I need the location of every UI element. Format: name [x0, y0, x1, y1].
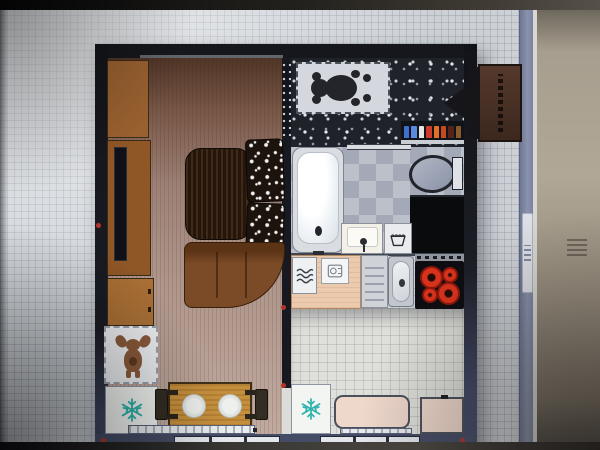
monitor-bezel-top — [0, 0, 600, 10]
bottle — [426, 126, 431, 138]
bottle — [434, 126, 439, 138]
bathtub-drain-icon — [315, 226, 322, 236]
basket-icon — [387, 228, 409, 250]
floor-plan — [95, 44, 477, 450]
kitchen-bench[interactable] — [334, 395, 410, 429]
entrance-arrow-shaft — [469, 127, 480, 139]
wardrobe[interactable] — [107, 60, 149, 138]
cooktop-knob-strip — [415, 254, 464, 261]
washbasin-faucet-stem — [363, 245, 365, 252]
heated-towel-rail[interactable] — [292, 257, 317, 294]
radiator-living[interactable] — [128, 425, 255, 434]
burner — [442, 267, 458, 283]
entrance-sign-board — [478, 64, 522, 142]
bottle — [404, 126, 409, 138]
patterned-armchair-1[interactable] — [245, 138, 285, 202]
drainboard[interactable] — [361, 255, 388, 308]
divider-shelf-decor — [282, 62, 291, 136]
dining-table[interactable] — [168, 382, 252, 428]
door-opening-floor — [282, 388, 291, 434]
scrollbar-thumb[interactable] — [522, 213, 533, 293]
bottle — [411, 126, 416, 138]
dining-chair-left[interactable] — [155, 389, 168, 420]
radiator-kitchen[interactable] — [340, 428, 412, 434]
plate — [182, 394, 206, 418]
dining-chair-right[interactable] — [255, 389, 268, 420]
refrigerator-kitchen[interactable] — [291, 384, 331, 434]
red-corner-marker — [96, 223, 101, 228]
entrance-arrow-shaft — [469, 67, 480, 79]
toilet-tank — [452, 157, 463, 190]
waves-icon — [295, 265, 315, 287]
kitchen-sink[interactable] — [388, 256, 414, 307]
tv[interactable] — [114, 147, 127, 261]
wall-top-highlight — [140, 55, 283, 58]
snowflake-icon — [299, 397, 323, 421]
deer-icon — [119, 336, 147, 378]
burner — [422, 287, 438, 303]
photo-left-shadow — [0, 8, 8, 444]
red-corner-marker — [281, 383, 286, 388]
bathtub[interactable] — [292, 147, 344, 253]
bear-icon — [311, 71, 375, 105]
bottle — [419, 126, 424, 138]
monitor-bezel-bottom — [0, 442, 600, 450]
entrance-sign[interactable] — [444, 62, 524, 146]
washing-machine[interactable] — [410, 195, 464, 253]
burner — [437, 282, 460, 305]
side-table[interactable] — [420, 397, 464, 434]
laundry-basket[interactable] — [384, 223, 412, 254]
scrollbar-grip-icon — [524, 245, 531, 261]
dresser[interactable] — [107, 278, 154, 326]
entrance-arrow-icon — [444, 77, 479, 129]
cooktop[interactable] — [415, 261, 464, 309]
photo-of-screen — [0, 0, 600, 450]
monitor-side-panel — [537, 8, 600, 444]
deer-rug[interactable] — [104, 326, 158, 384]
bathroom-door-threshold — [347, 144, 411, 150]
coffee-machine[interactable] — [321, 258, 349, 284]
vent-lines — [567, 238, 587, 256]
washbasin[interactable] — [341, 223, 383, 254]
plate — [218, 394, 242, 418]
design-app-canvas — [0, 8, 537, 444]
washbasin-faucet-icon — [360, 238, 367, 245]
coffee-machine-icon — [325, 262, 345, 280]
side-table-knob — [441, 395, 448, 399]
coffee-table[interactable] — [185, 148, 252, 240]
sink-faucet-icon — [399, 279, 405, 287]
teddy-bear-rug[interactable] — [296, 62, 390, 114]
red-corner-marker — [281, 305, 286, 310]
snowflake-icon — [119, 397, 145, 423]
